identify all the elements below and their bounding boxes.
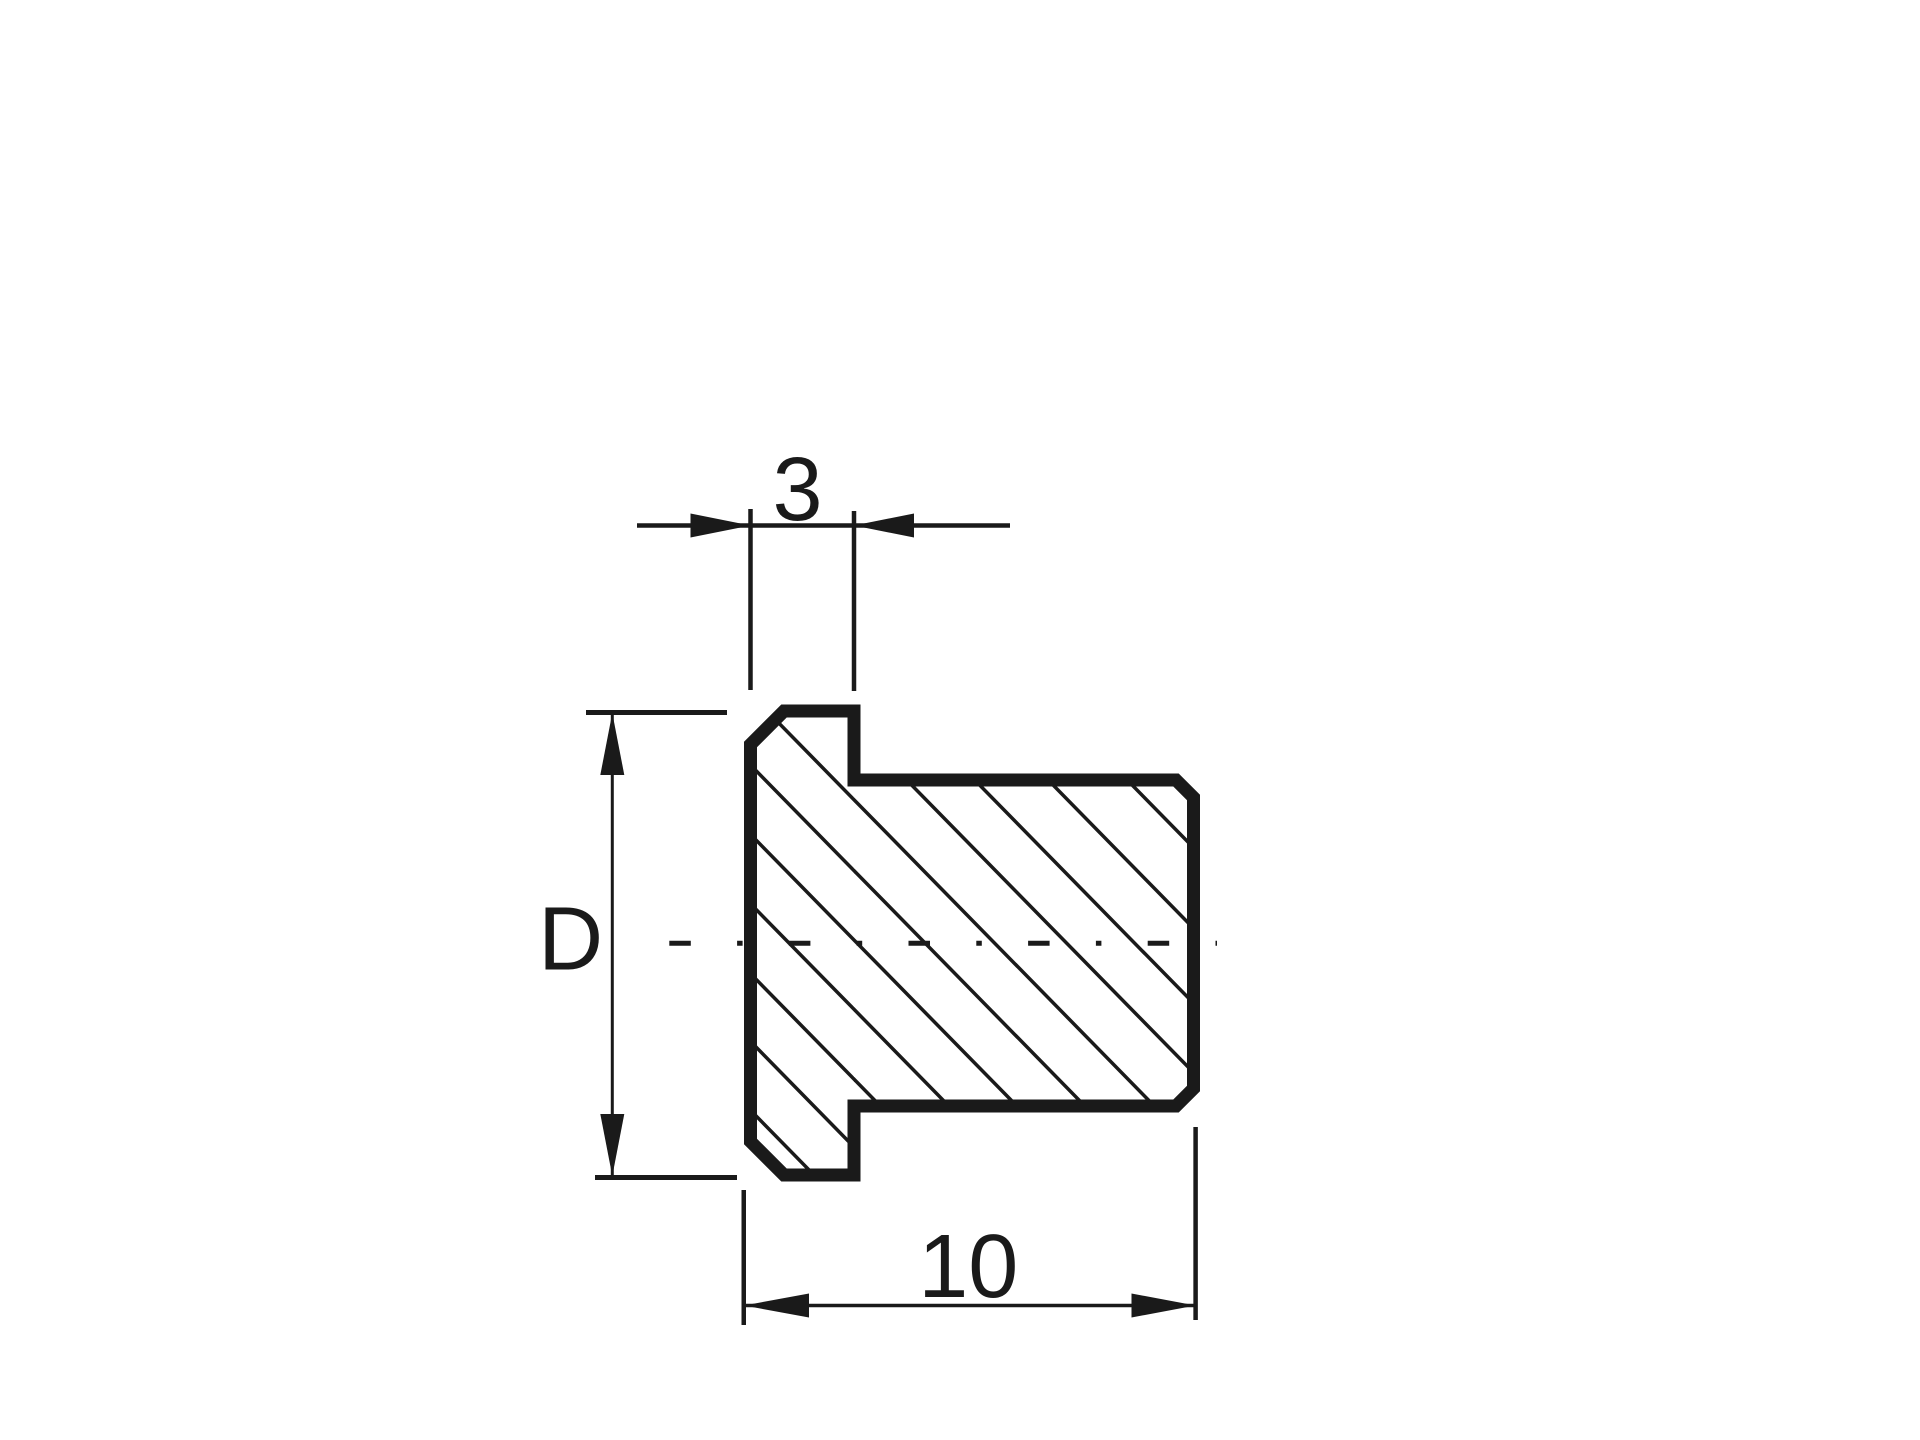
svg-text:3: 3: [772, 440, 822, 540]
svg-text:D: D: [538, 890, 603, 990]
svg-text:10: 10: [918, 1217, 1018, 1317]
